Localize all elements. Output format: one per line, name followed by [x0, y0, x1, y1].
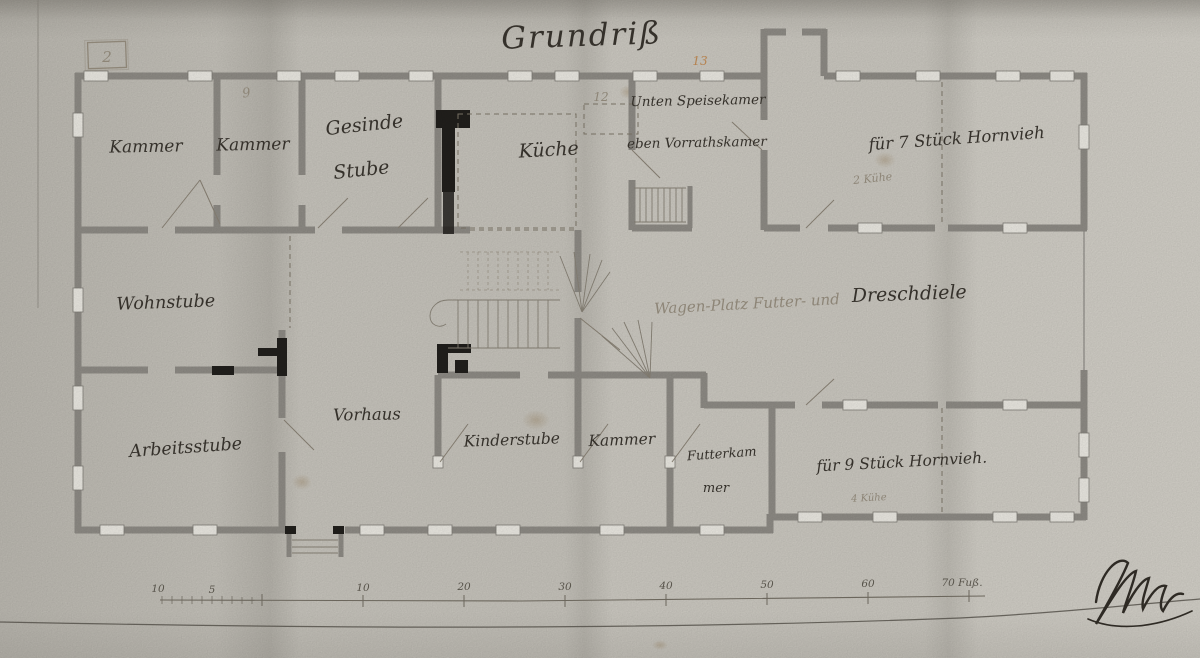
floor-plan-drawing: Grundriß Kammer Kammer Gesinde Stube Küc… [0, 0, 1200, 658]
room-label-vorhaus: Vorhaus [333, 404, 401, 424]
room-label-kammer-s: Kammer [587, 430, 657, 450]
scale-label-40: 40 [658, 580, 673, 592]
room-label-speisekammer-line1: Unten Speisekamer [630, 92, 767, 110]
room-label-kammer-nw: Kammer [108, 136, 183, 157]
scale-label-left-10: 10 [151, 583, 165, 595]
room-label-speisekammer-line2: eben Vorrathskamer [627, 134, 769, 152]
pencil-boxed-number: 2 [101, 48, 112, 66]
scale-label-end: 70 Fuß. [941, 577, 982, 589]
pencil-number-13: 13 [692, 54, 708, 68]
room-label-futterkammer-line2: mer [703, 481, 730, 496]
scale-label-10: 10 [356, 582, 370, 594]
scale-label-left-5: 5 [209, 584, 216, 596]
scale-label-50: 50 [760, 579, 774, 591]
pencil-number-12: 12 [593, 90, 608, 104]
page-title: Grundriß [501, 15, 663, 57]
pencil-note-stall-sued: 4 Kühe [850, 492, 887, 505]
room-label-kinderstube: Kinderstube [462, 429, 560, 450]
scale-label-60: 60 [861, 578, 875, 590]
room-label-diele-ink: Dreschdiele [850, 281, 967, 307]
scale-label-20: 20 [456, 581, 471, 593]
scanned-floor-plan-page: Grundriß Kammer Kammer Gesinde Stube Küc… [0, 0, 1200, 658]
room-label-kammer-n: Kammer [215, 134, 290, 155]
room-label-kueche: Küche [517, 137, 579, 162]
scale-label-30: 30 [558, 581, 572, 593]
room-label-wohnstube: Wohnstube [116, 291, 215, 314]
